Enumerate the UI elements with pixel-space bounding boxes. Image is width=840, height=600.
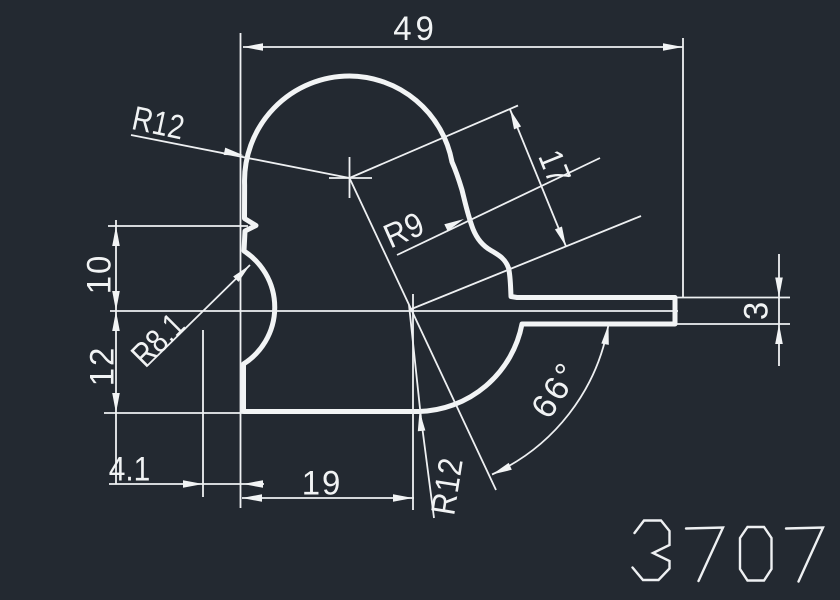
svg-text:4.1: 4.1 xyxy=(109,450,151,488)
svg-text:10: 10 xyxy=(81,254,119,295)
svg-text:19: 19 xyxy=(302,465,343,503)
svg-text:49: 49 xyxy=(393,11,437,49)
svg-text:3: 3 xyxy=(738,300,776,320)
svg-text:12: 12 xyxy=(84,346,122,387)
